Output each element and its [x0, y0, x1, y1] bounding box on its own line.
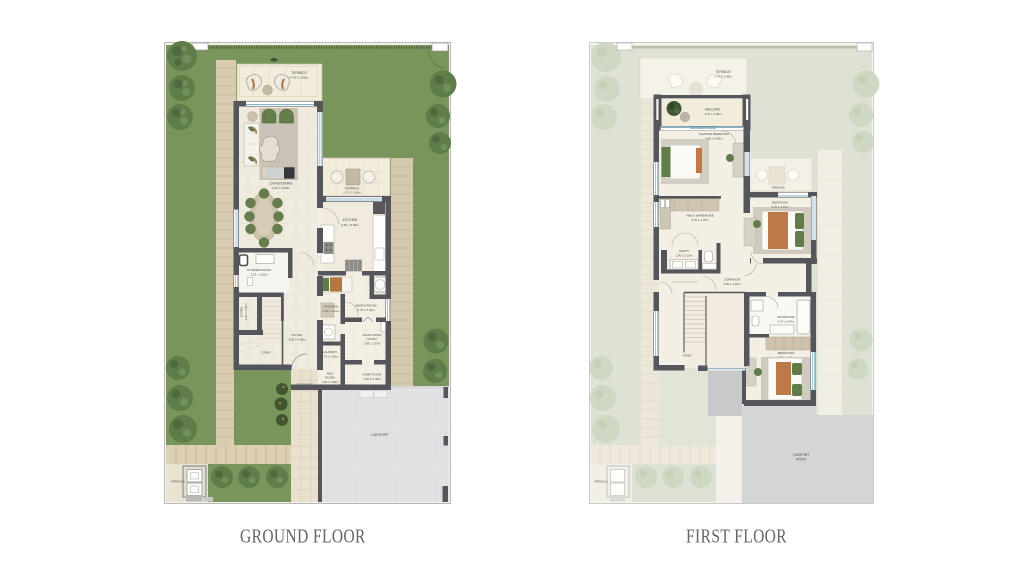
svg-text:TERRACE: TERRACE: [291, 71, 308, 75]
svg-text:3.46 x 3.96m: 3.46 x 3.96m: [341, 223, 359, 227]
svg-text:2.75 x 2.40m: 2.75 x 2.40m: [357, 308, 375, 312]
svg-text:4.70 X 1.90m: 4.70 X 1.90m: [290, 76, 309, 80]
svg-text:PUMP ROOM: PUMP ROOM: [363, 373, 382, 377]
svg-text:2.20 x 1.11m: 2.20 x 1.11m: [323, 309, 340, 313]
svg-text:WALK WARDROBE: WALK WARDROBE: [686, 214, 714, 218]
svg-text:BEDROOM: BEDROOM: [778, 351, 794, 355]
svg-text:CARPORT: CARPORT: [371, 433, 389, 437]
svg-text:CARPORT: CARPORT: [793, 453, 810, 457]
svg-text:LAUNDRY: LAUNDRY: [323, 350, 337, 354]
svg-text:4.15 x 9.20m: 4.15 x 9.20m: [272, 186, 290, 190]
svg-text:KITCHEN: KITCHEN: [343, 218, 358, 222]
svg-text:1.90 x 2.10m: 1.90 x 2.10m: [676, 253, 693, 257]
svg-text:ROOF: ROOF: [796, 458, 806, 462]
svg-text:PERGOLA: PERGOLA: [171, 480, 185, 484]
svg-text:TERRACE: TERRACE: [715, 70, 730, 74]
svg-text:CORRIDOR: CORRIDOR: [724, 278, 741, 282]
svg-text:1.60 x 1.89m: 1.60 x 1.89m: [322, 380, 339, 384]
svg-text:1.68 x 1.57m: 1.68 x 1.57m: [364, 342, 381, 346]
svg-text:3.55 x 4.09m: 3.55 x 4.09m: [288, 337, 306, 341]
svg-text:2.75 x 2.40m: 2.75 x 2.40m: [778, 319, 795, 323]
svg-text:LIVING/DINING: LIVING/DINING: [269, 182, 293, 186]
svg-text:STAIR: STAIR: [262, 351, 272, 355]
svg-text:MASTER BEDROOM: MASTER BEDROOM: [699, 132, 729, 136]
svg-text:VANITY: VANITY: [679, 249, 690, 253]
svg-text:MAID'S ROOM: MAID'S ROOM: [356, 304, 377, 308]
svg-text:POWDER ROOM: POWDER ROOM: [247, 268, 271, 272]
svg-text:1.75 x 1.60m: 1.75 x 1.60m: [322, 354, 339, 358]
svg-text:4.70 X 1.90m: 4.70 X 1.90m: [714, 75, 732, 79]
svg-text:FOYER: FOYER: [292, 333, 303, 337]
svg-text:1.60 x 1.90m: 1.60 x 1.90m: [244, 303, 248, 320]
svg-text:3.90 x 1.20m: 3.90 x 1.20m: [724, 282, 741, 286]
svg-text:2.27 X 1.80m: 2.27 X 1.80m: [343, 191, 361, 195]
svg-text:3.45 x 1.76m: 3.45 x 1.76m: [691, 218, 709, 222]
svg-text:STORE: STORE: [240, 307, 244, 317]
svg-text:3.70 x 4.10m: 3.70 x 4.10m: [771, 205, 789, 209]
svg-text:4.70 x 1.90m: 4.70 x 1.90m: [704, 112, 722, 116]
svg-text:STAIR: STAIR: [683, 354, 693, 358]
svg-text:TERRACE: TERRACE: [771, 186, 785, 190]
svg-text:1.60 X 1.40m: 1.60 X 1.40m: [363, 377, 381, 381]
svg-text:2.22 x 1.60m: 2.22 x 1.60m: [251, 272, 268, 276]
svg-text:BEDROOM: BEDROOM: [772, 201, 788, 205]
svg-text:ROOM: ROOM: [367, 337, 377, 341]
svg-text:BATHROOM: BATHROOM: [777, 315, 795, 319]
svg-text:4.60 x 5.60m: 4.60 x 5.60m: [705, 137, 723, 141]
svg-text:PERGOLA: PERGOLA: [594, 480, 608, 484]
svg-text:BALCONY: BALCONY: [705, 108, 721, 112]
